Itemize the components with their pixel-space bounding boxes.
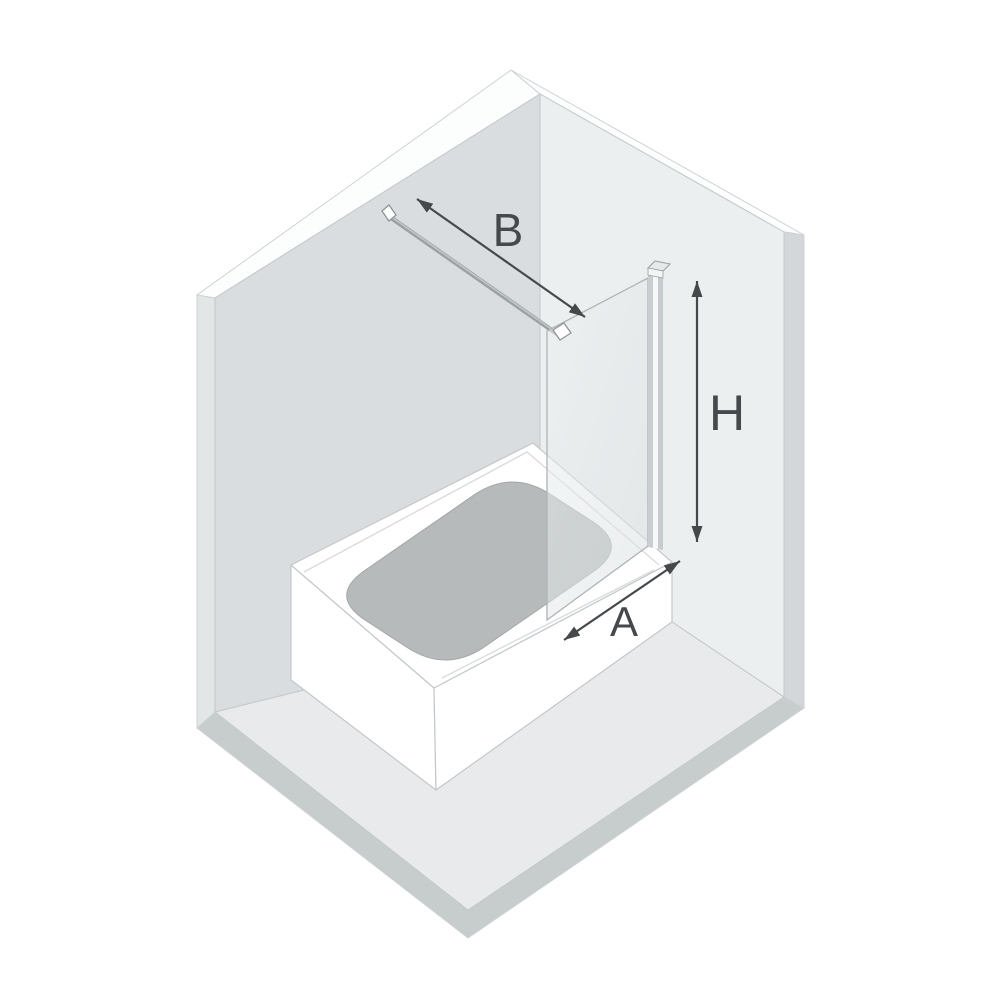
dimension-h-label: H xyxy=(709,385,745,441)
wall-side-edge-right xyxy=(784,232,804,708)
dimension-b-label: B xyxy=(493,204,524,256)
dimension-a-label: A xyxy=(610,598,638,645)
profile-stripe-mid xyxy=(653,265,658,549)
profile-stripe-left xyxy=(648,266,653,548)
profile-stripe-right xyxy=(658,264,663,550)
wall-side-edge-left xyxy=(197,295,215,728)
bath-screen-diagram: B H A xyxy=(0,0,1000,1000)
